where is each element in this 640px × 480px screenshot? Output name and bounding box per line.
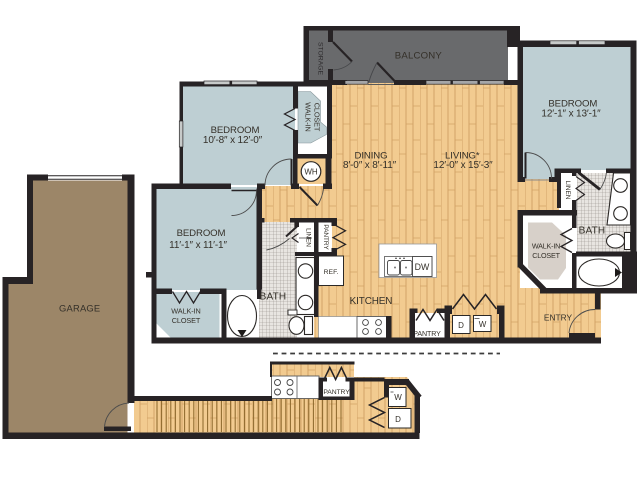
svg-text:10′-8″ x 12′-0″: 10′-8″ x 12′-0″	[203, 135, 263, 146]
svg-text:BEDROOM: BEDROOM	[177, 228, 226, 239]
svg-text:CLOSET: CLOSET	[172, 316, 201, 325]
svg-text:KITCHEN: KITCHEN	[350, 296, 393, 307]
svg-text:LINEN: LINEN	[564, 181, 571, 200]
svg-text:WALK-IN: WALK-IN	[304, 102, 313, 131]
svg-text:W: W	[479, 320, 487, 329]
svg-text:W: W	[394, 393, 402, 402]
svg-text:ENTRY: ENTRY	[544, 312, 573, 322]
svg-text:PANTRY: PANTRY	[413, 330, 441, 338]
svg-text:CLOSET: CLOSET	[313, 103, 322, 132]
svg-text:D: D	[458, 321, 464, 330]
svg-text:DW: DW	[415, 262, 430, 272]
svg-text:12′-0″ x 15′-3″: 12′-0″ x 15′-3″	[433, 160, 493, 171]
svg-text:GARAGE: GARAGE	[59, 302, 100, 313]
svg-text:CLOSET: CLOSET	[532, 251, 560, 260]
svg-text:BATH: BATH	[579, 226, 606, 237]
svg-text:PANTRY: PANTRY	[323, 389, 350, 396]
svg-text:LINEN: LINEN	[305, 228, 312, 247]
svg-text:D: D	[395, 415, 401, 424]
svg-text:STORAGE: STORAGE	[317, 42, 324, 76]
svg-text:12′-1″ x 13′-1″: 12′-1″ x 13′-1″	[541, 108, 601, 119]
svg-text:11′-1″ x 11′-1″: 11′-1″ x 11′-1″	[169, 240, 227, 251]
svg-text:WALK-IN: WALK-IN	[171, 307, 200, 316]
svg-text:8′-0″ x 8′-11″: 8′-0″ x 8′-11″	[343, 160, 397, 171]
svg-text:REF.: REF.	[324, 269, 339, 276]
svg-text:BATH: BATH	[260, 292, 287, 303]
svg-text:PANTRY: PANTRY	[322, 224, 329, 250]
svg-text:WH: WH	[304, 168, 318, 177]
svg-text:WALK-IN: WALK-IN	[532, 242, 560, 251]
svg-text:BEDROOM: BEDROOM	[211, 125, 260, 136]
svg-text:BALCONY: BALCONY	[395, 50, 443, 61]
